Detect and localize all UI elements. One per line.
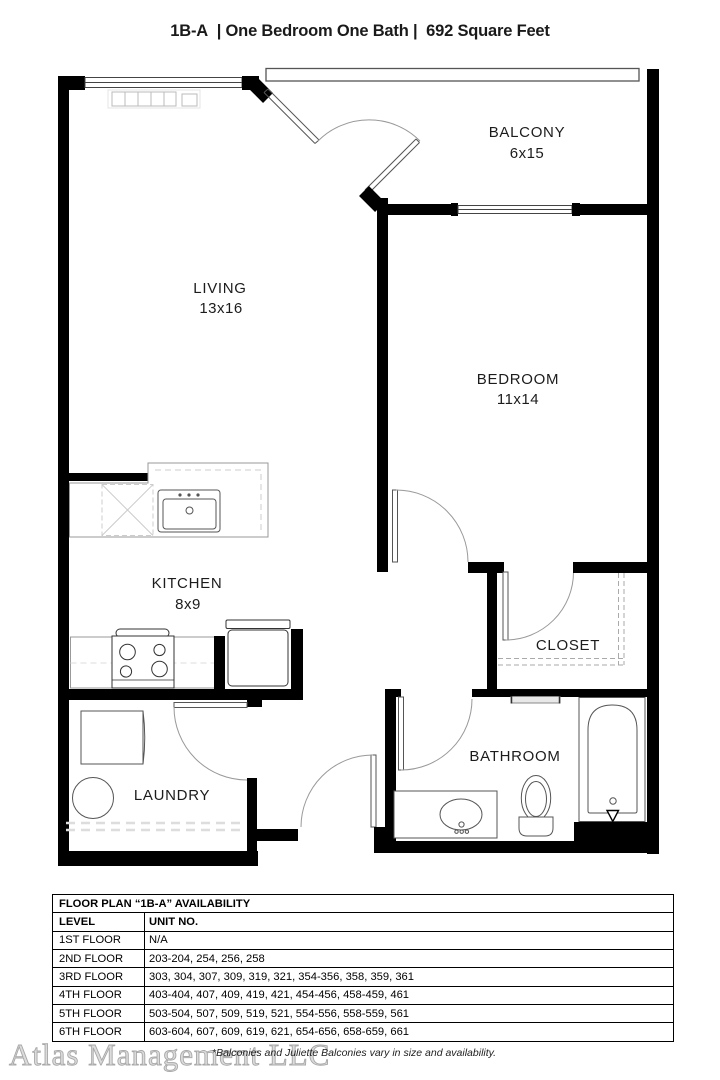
svg-text:KITCHEN: KITCHEN [152,575,223,592]
svg-text:LIVING: LIVING [193,280,246,297]
svg-text:CLOSET: CLOSET [536,637,600,654]
svg-text:6x15: 6x15 [510,145,545,162]
svg-text:13x16: 13x16 [199,300,242,317]
svg-text:8x9: 8x9 [175,596,201,613]
svg-text:BALCONY: BALCONY [489,124,566,141]
svg-text:BEDROOM: BEDROOM [477,371,559,388]
svg-text:BATHROOM: BATHROOM [469,748,560,765]
svg-text:LAUNDRY: LAUNDRY [134,787,210,804]
svg-text:11x14: 11x14 [497,391,539,408]
